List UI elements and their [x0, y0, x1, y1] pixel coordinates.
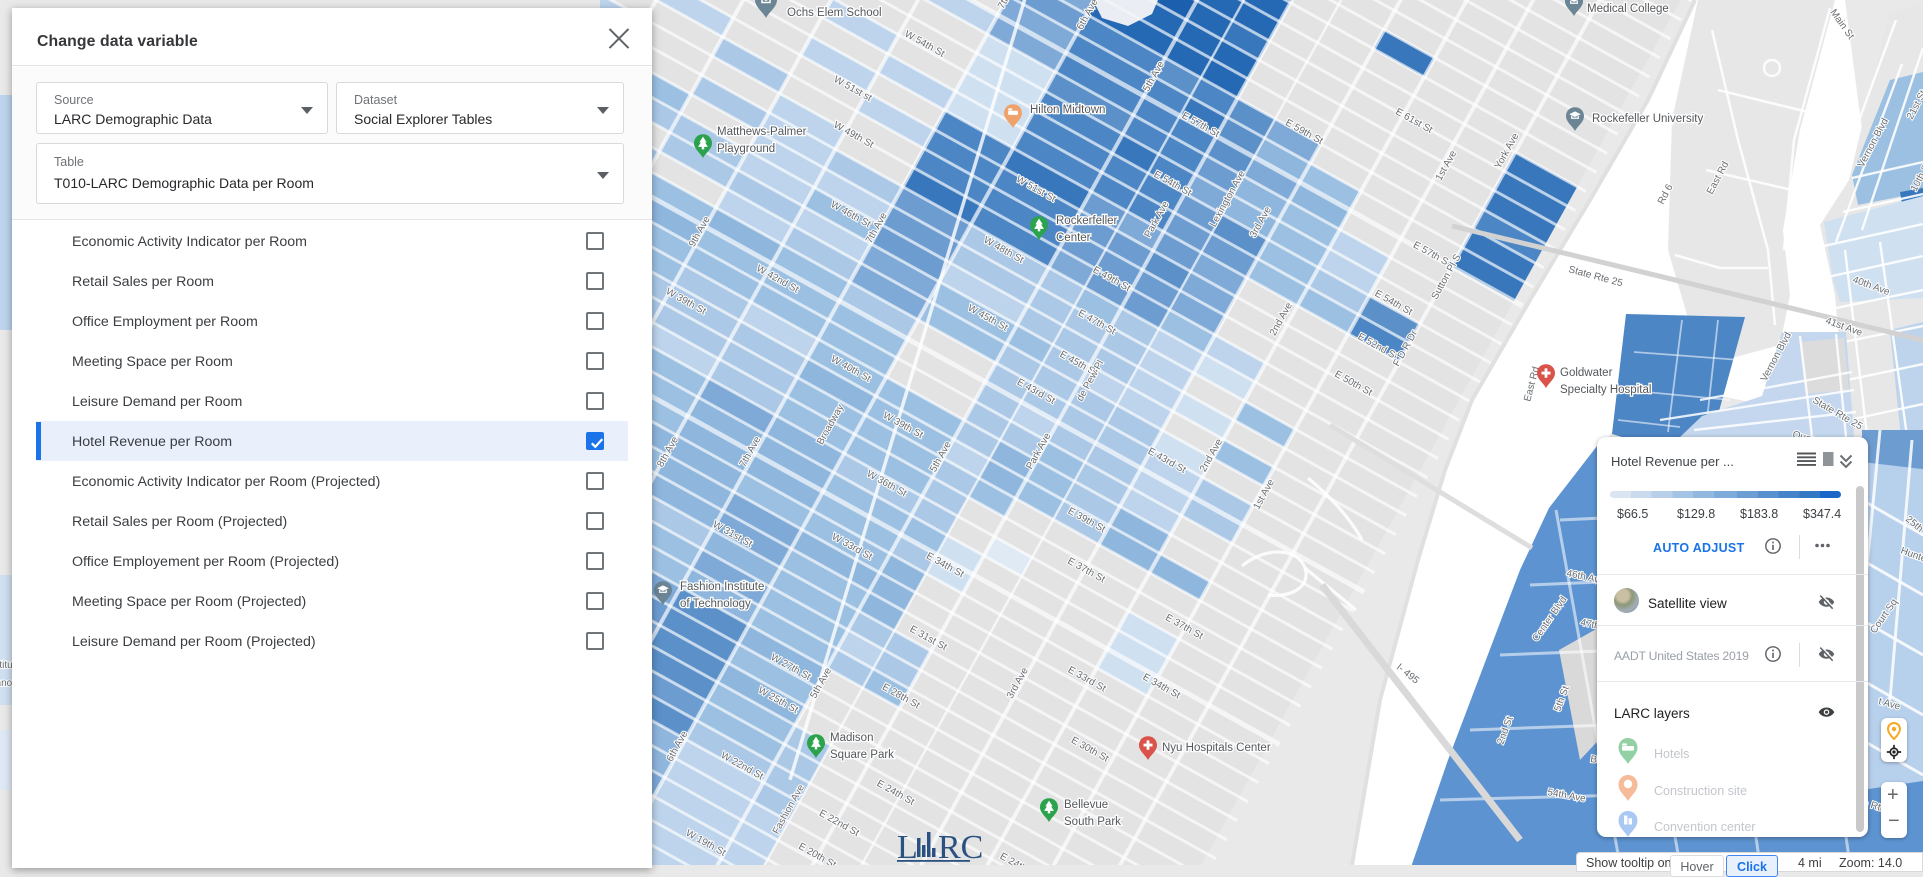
svg-text:Center: Center: [1056, 232, 1091, 244]
svg-text:Goldwater: Goldwater: [1560, 367, 1613, 379]
svg-text:Ochs Elem School: Ochs Elem School: [787, 7, 882, 19]
svg-text:Playground: Playground: [717, 143, 775, 155]
svg-text:RC: RC: [938, 829, 983, 865]
svg-text:South Park: South Park: [1064, 816, 1121, 828]
svg-text:Madison: Madison: [830, 732, 873, 744]
svg-text:Matthews-Palmer: Matthews-Palmer: [717, 126, 807, 138]
svg-text:Medical College: Medical College: [1587, 3, 1669, 15]
svg-text:Rockefeller University: Rockefeller University: [1592, 113, 1703, 125]
svg-text:Specialty Hospital: Specialty Hospital: [1560, 384, 1651, 396]
svg-text:Rockerfeller: Rockerfeller: [1056, 215, 1118, 227]
svg-text:Square Park: Square Park: [830, 749, 894, 761]
svg-text:L: L: [897, 829, 918, 865]
svg-text:of Technology: of Technology: [680, 598, 751, 610]
svg-text:Nyu Hospitals Center: Nyu Hospitals Center: [1162, 742, 1271, 754]
svg-text:Bellevue: Bellevue: [1064, 799, 1108, 811]
svg-text:Hilton Midtown: Hilton Midtown: [1030, 104, 1105, 116]
svg-text:Fashion Institute: Fashion Institute: [680, 581, 764, 593]
